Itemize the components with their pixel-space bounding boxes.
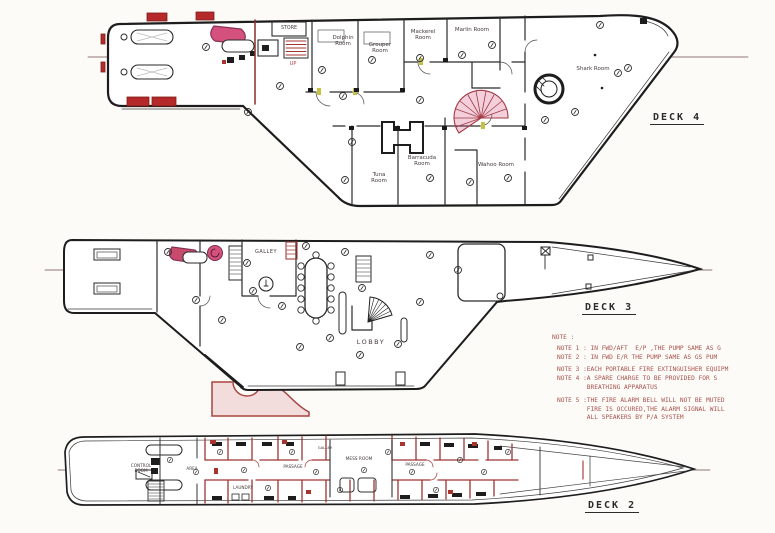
room-label-mackerel: Mackerel Room: [405, 29, 441, 42]
note-line-5c: ALL SPEAKERS BY P/A SYSTEM: [557, 414, 774, 423]
room-label-wahoo: Wahoo Room: [468, 162, 524, 168]
room-label-grouper: Grouper Room: [362, 42, 398, 55]
galley-label: GALLEY: [246, 250, 286, 256]
store-room-label: STORE: [274, 26, 304, 32]
room-label-shark: Shark Room: [566, 66, 620, 72]
room-label-dolphin: Dolphin Room: [325, 35, 361, 48]
note-line-2: NOTE 2 : IN FWD E/R THE PUMP SAME AS GS …: [557, 354, 774, 363]
staircase-icon: [284, 38, 308, 58]
deck4-label: DECK 4: [650, 112, 704, 125]
scanned-deck-plan-page: STORE UP Dolphin Room Grouper Room Macke…: [0, 0, 775, 533]
galley2-label: GALLEY: [314, 446, 336, 450]
passage-fwd-label: PASSAGE: [398, 463, 432, 468]
deck3-label: DECK 3: [582, 302, 636, 315]
laundry-label: LAUNDRY: [228, 486, 258, 491]
note-line-5b: FIRE IS OCCURED,THE ALARM SIGNAL WILL: [557, 406, 774, 415]
room-label-barracuda: Barracuda Room: [400, 155, 444, 168]
deck2-label: DECK 2: [585, 500, 639, 513]
lobby-label: LOBBY: [350, 339, 392, 346]
notes-block: NOTE : NOTE 1 : IN FWD/AFT E/P ,THE PUMP…: [552, 334, 774, 423]
passage-aft-label: PASSAGE: [276, 465, 310, 470]
note-line-3: NOTE 3 :EACH PORTABLE FIRE EXTINGUISHER …: [557, 366, 774, 375]
note-line-4b: BREATHING APPARATUS: [557, 384, 774, 393]
control-room-label: CONTROL ROOM: [126, 464, 156, 474]
up-stairs-label: UP: [284, 62, 302, 68]
note-line-1: NOTE 1 : IN FWD/AFT E/P ,THE PUMP SAME A…: [557, 345, 774, 354]
room-label-tuna: Tuna Room: [364, 172, 394, 185]
note-line-5: NOTE 5 :THE FIRE ALARM BELL WILL NOT BE …: [557, 397, 774, 406]
spiral-stair-small-icon: [208, 246, 223, 261]
room-label-marlin: Marlin Room: [446, 27, 498, 33]
area-label: AREA: [182, 467, 202, 472]
note-line-4: NOTE 4 :A SPARE CHARGE TO BE PROVIDED FO…: [557, 375, 774, 384]
notes-title: NOTE :: [552, 334, 774, 343]
mess-room-label: MESS ROOM: [341, 458, 377, 463]
ship-fire-control-plan-drawing: [0, 0, 775, 533]
